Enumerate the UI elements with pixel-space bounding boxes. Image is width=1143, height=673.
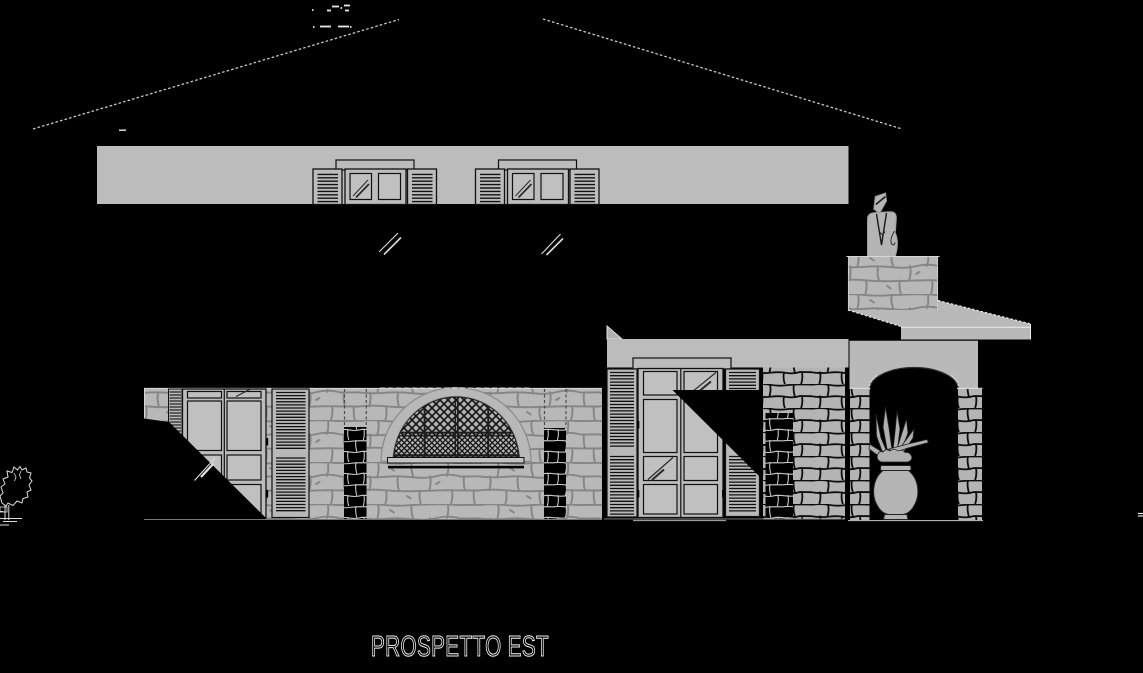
- svg-text:PROSPETTO EST: PROSPETTO EST: [371, 631, 549, 663]
